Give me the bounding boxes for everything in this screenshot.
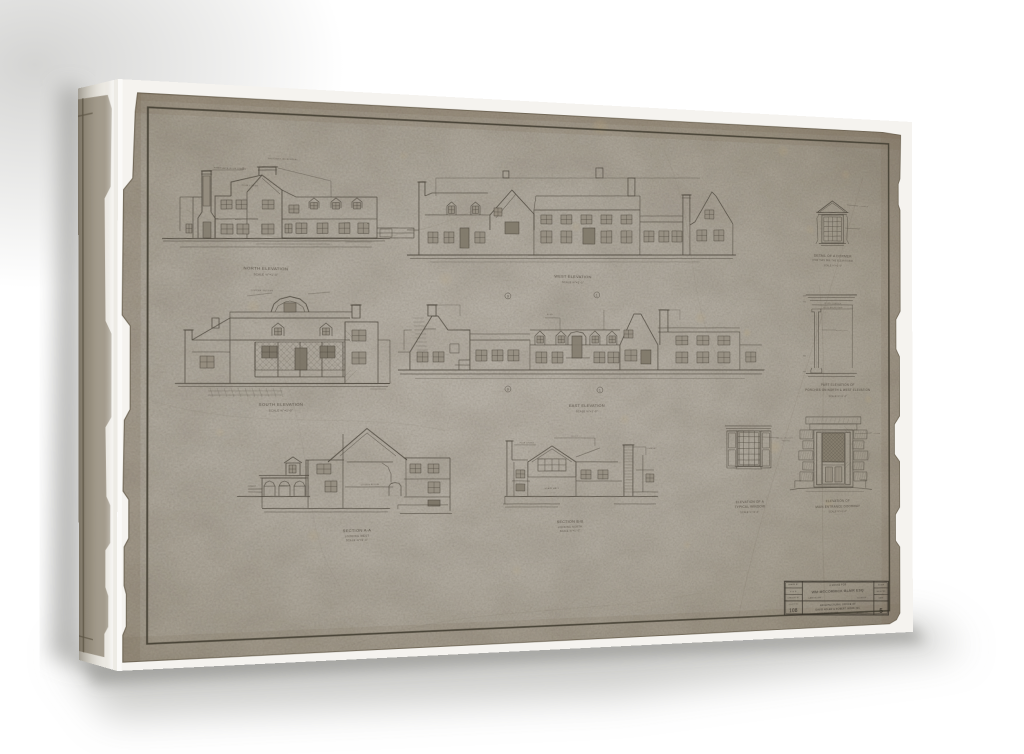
svg-text:WOOD ARCHITRAVE: WOOD ARCHITRAVE	[823, 307, 843, 310]
svg-text:ELEVATION OF A: ELEVATION OF A	[736, 500, 764, 504]
svg-text:SCALE: SCALE	[878, 583, 884, 586]
svg-text:DATE: DATE	[879, 597, 884, 600]
svg-text:WOOD POST: WOOD POST	[836, 330, 849, 332]
svg-text:WOOD CORNICE: WOOD CORNICE	[824, 303, 841, 305]
svg-text:SCALE ¾"=1'-0": SCALE ¾"=1'-0"	[824, 264, 843, 268]
svg-text:DRAWN BY: DRAWN BY	[788, 583, 798, 586]
svg-text:5: 5	[879, 607, 883, 615]
svg-text:SCALE ⅛"=1'-0": SCALE ⅛"=1'-0"	[346, 538, 368, 542]
svg-text:PORCHES ON NORTH & WEST ELEVAT: PORCHES ON NORTH & WEST ELEVATION	[805, 388, 870, 391]
svg-text:FLUE: FLUE	[547, 314, 553, 316]
svg-text:AS NOTED: AS NOTED	[877, 590, 886, 593]
svg-text:LAKE BLUFF: LAKE BLUFF	[808, 596, 821, 599]
svg-text:LOOKING WEST: LOOKING WEST	[345, 534, 369, 538]
svg-text:SECTION B-B: SECTION B-B	[557, 519, 584, 524]
svg-text:LIVING ROOM: LIVING ROOM	[361, 483, 379, 486]
svg-text:PART ELEVATION OF: PART ELEVATION OF	[821, 383, 855, 386]
svg-text:STONE: STONE	[873, 433, 880, 435]
svg-text:WOOD SHUTTER: WOOD SHUTTER	[776, 437, 793, 439]
svg-text:LOOKING NORTH: LOOKING NORTH	[558, 525, 583, 529]
svg-text:NORTH ELEVATION: NORTH ELEVATION	[244, 266, 289, 272]
svg-text:EAST ELEVATION: EAST ELEVATION	[569, 403, 605, 407]
svg-text:WEST ELEVATION: WEST ELEVATION	[554, 274, 591, 279]
svg-text:SCALE ¾"=1'-0": SCALE ¾"=1'-0"	[829, 510, 848, 514]
svg-text:F G S: F G S	[790, 590, 796, 593]
svg-text:SOUTH ELEVATION: SOUTH ELEVATION	[259, 402, 303, 407]
svg-text:GRADE: GRADE	[248, 485, 257, 488]
svg-text:CHIMNEY: CHIMNEY	[647, 448, 657, 450]
svg-text:SECTION A-A: SECTION A-A	[343, 528, 372, 533]
svg-text:RIDGE: RIDGE	[571, 436, 578, 438]
svg-text:FLUE LINING: FLUE LINING	[520, 443, 534, 445]
svg-text:SCALE ⅛"=1'-0": SCALE ⅛"=1'-0"	[560, 529, 581, 533]
svg-text:TYPICAL WINDOW: TYPICAL WINDOW	[735, 505, 766, 509]
svg-text:SCALE ⅛"=1'-0": SCALE ⅛"=1'-0"	[576, 410, 598, 414]
svg-text:108: 108	[789, 608, 798, 613]
svg-text:PAINTED: PAINTED	[782, 440, 791, 443]
svg-text:CORNICE: CORNICE	[859, 206, 868, 208]
svg-text:SCALE ⅛"=1'-0": SCALE ⅛"=1'-0"	[254, 272, 279, 276]
svg-text:SCALE ⅛"=1'-0": SCALE ⅛"=1'-0"	[562, 281, 584, 285]
svg-text:ILLINOIS: ILLINOIS	[857, 597, 866, 599]
svg-text:SCALE ⅜"=1'-0": SCALE ⅜"=1'-0"	[829, 394, 848, 397]
svg-text:SCALE ¾"=1'-0": SCALE ¾"=1'-0"	[740, 510, 759, 514]
svg-text:SCALE ⅛"=1'-0": SCALE ⅛"=1'-0"	[269, 409, 294, 413]
svg-text:A HOUSE FOR: A HOUSE FOR	[829, 583, 846, 587]
svg-text:STAIR HALL: STAIR HALL	[545, 487, 560, 490]
svg-text:ELEVATION OF: ELEVATION OF	[826, 499, 850, 503]
svg-text:COPPER GUTTER: COPPER GUTTER	[251, 290, 274, 292]
